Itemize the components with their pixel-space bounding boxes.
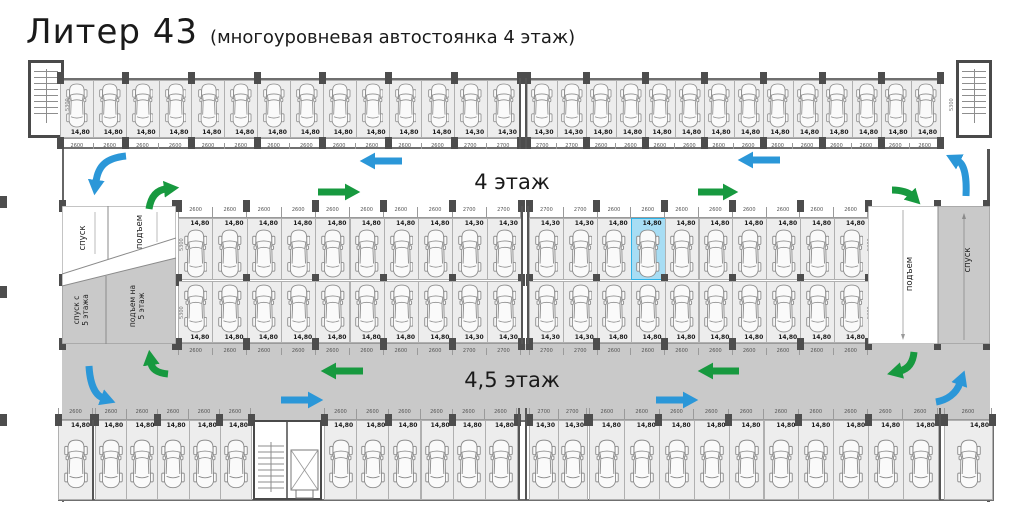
space-area-label: 14,80: [846, 334, 865, 341]
space-area-label: 14,80: [778, 334, 797, 341]
parking-space: 14,80: [911, 80, 942, 138]
space-area-label: 14,80: [301, 129, 320, 136]
car-icon: [489, 439, 513, 489]
parking-space: 14,80: [418, 281, 453, 343]
dimension-label: 2700: [452, 348, 486, 355]
space-area-label: 14,80: [225, 220, 244, 227]
space-area-label: 14,80: [431, 422, 450, 429]
pillar: [216, 414, 223, 426]
parking-space: 14,30: [452, 218, 487, 280]
space-area-label: 14,80: [744, 334, 763, 341]
car-icon: [493, 229, 517, 278]
space-area-label: 14,80: [771, 129, 790, 136]
ramp-label: подъем: [135, 215, 145, 249]
dimension-label: 2600: [484, 409, 516, 419]
dimension-label: 2600: [420, 409, 452, 419]
dimension-strip: 2700270026002600260026002600260026002600: [529, 343, 868, 355]
space-area-label: 14,80: [889, 129, 908, 136]
space-area-label: 14,80: [259, 334, 278, 341]
space-area-label: 14,80: [334, 422, 353, 429]
parking-space: 14,80: [800, 218, 835, 280]
parking-space: 14,80: [224, 80, 258, 138]
dimension-label: 2600: [191, 143, 224, 149]
dimension-label: 2600: [766, 207, 800, 217]
space-area-label: 14,30: [465, 220, 484, 227]
dimension-label: 2600: [597, 207, 631, 217]
selected-parking-space[interactable]: 14,80: [631, 218, 666, 280]
space-area-label: 14,80: [653, 129, 672, 136]
dimension-strip: 2700270026002600260026002600260026002600: [529, 206, 868, 218]
dimension-label: 2600: [728, 409, 763, 419]
dimension-label: 2600: [902, 409, 937, 419]
parking-space: 14,80: [389, 80, 423, 138]
dimension-label: 2600: [664, 207, 698, 217]
dimension-strip: 26002600260026002600: [95, 408, 251, 420]
space-area-label: 14,80: [328, 220, 347, 227]
parking-space: 14,30: [527, 80, 558, 138]
car-icon: [458, 284, 482, 333]
space-area-label: 14,80: [367, 129, 386, 136]
dimension-label: 2600: [257, 143, 290, 149]
dimension-label: 2600: [356, 409, 388, 419]
dimension-label: 2700: [558, 409, 587, 419]
space-area-label: 14,80: [268, 129, 287, 136]
parking-space: 14,80: [699, 281, 734, 343]
car-icon: [493, 284, 517, 333]
parking-space: 14,80: [699, 218, 734, 280]
pillar: [725, 414, 732, 426]
space-area-label: 14,80: [430, 334, 449, 341]
dimension-label: 2600: [417, 207, 451, 217]
dimension-label: 2600: [704, 143, 733, 149]
parking-space: 14,80: [586, 80, 617, 138]
pillar: [0, 414, 7, 426]
space-area-label: 14,80: [104, 422, 123, 429]
dimension-label: 2600: [586, 143, 615, 149]
space-area-label: 14,80: [830, 129, 849, 136]
parking-space: 14,80: [645, 80, 676, 138]
stairs-rail: [46, 69, 47, 123]
space-area-label: 14,80: [229, 422, 248, 429]
pillar: [760, 72, 767, 84]
dimension-label: 2600: [281, 348, 315, 355]
parking-space: 14,80: [732, 218, 767, 280]
space-area-label: 14,80: [643, 220, 662, 227]
parking-space: 14,80: [881, 80, 912, 138]
dimension-label: 2600: [763, 409, 798, 419]
car-icon: [602, 284, 626, 333]
car-icon: [460, 83, 482, 128]
car-icon: [806, 229, 830, 278]
car-icon: [184, 229, 208, 278]
pillar: [583, 137, 590, 149]
pillar: [795, 414, 802, 426]
space-area-label: 14,80: [396, 334, 415, 341]
parking-space: 14,80: [624, 420, 660, 500]
space-area-label: 14,30: [575, 334, 594, 341]
space-area-label: 14,80: [609, 220, 628, 227]
pillar: [642, 137, 649, 149]
car-icon: [355, 284, 379, 333]
parking-space: 14,80: [764, 420, 800, 500]
parking-space: 14,80: [453, 420, 486, 500]
plan-title: Литер 43: [26, 12, 198, 52]
car-icon: [218, 284, 242, 333]
space-area-label: 14,80: [71, 422, 90, 429]
dimension-label: 2600: [762, 143, 791, 149]
space-area-label: 14,80: [643, 334, 662, 341]
car-icon: [428, 83, 450, 128]
depth-dimension-label: 5300: [179, 235, 185, 251]
dimension-label: 2600: [630, 207, 664, 217]
pillar: [937, 72, 944, 84]
pillar: [319, 137, 326, 149]
car-icon: [263, 83, 285, 128]
car-icon: [457, 439, 481, 489]
parking-space: 14,30: [487, 218, 522, 280]
space-area-label: 14,80: [672, 422, 691, 429]
pillar: [593, 338, 600, 350]
pillar: [0, 286, 7, 298]
car-icon: [874, 439, 898, 489]
space-area-label: 14,80: [742, 422, 761, 429]
space-area-label: 14,80: [259, 220, 278, 227]
parking-space: 14,80: [290, 80, 324, 138]
pillar: [312, 338, 319, 350]
dimension-label: 2600: [417, 348, 451, 355]
car-icon: [424, 229, 448, 278]
dimension-label: 2700: [528, 143, 556, 149]
space-area-label: 14,30: [565, 422, 584, 429]
space-area-label: 14,80: [859, 129, 878, 136]
space-area-label: 14,80: [366, 422, 385, 429]
car-icon: [390, 284, 414, 333]
dimension-label: 2600: [909, 143, 938, 149]
parking-space: 14,80: [356, 80, 390, 138]
parking-space: 14,80: [793, 80, 824, 138]
space-area-label: 14,80: [399, 422, 418, 429]
space-area-label: 14,30: [499, 220, 518, 227]
space-area-label: 14,80: [430, 220, 449, 227]
pillar: [57, 72, 64, 84]
space-area-label: 14,80: [778, 220, 797, 227]
parking-space: 14,80: [212, 281, 247, 343]
dimension-label: 2600: [851, 143, 880, 149]
car-icon: [329, 83, 351, 128]
car-icon: [132, 83, 154, 128]
space-area-label: 14,80: [399, 129, 418, 136]
space-area-label: 14,30: [465, 334, 484, 341]
car-icon: [738, 229, 762, 278]
space-area-label: 14,80: [776, 422, 795, 429]
pillar: [937, 137, 944, 149]
space-area-label: 14,80: [362, 334, 381, 341]
parking-space: 14,80: [659, 420, 695, 500]
parking-space: 14,80: [247, 218, 282, 280]
parking-space: 14,80: [834, 281, 869, 343]
dimension-label: 2600: [388, 409, 420, 419]
parking-space: 14,80: [356, 420, 389, 500]
dimension-label: 2600: [798, 409, 833, 419]
wall: [939, 408, 941, 500]
space-area-label: 14,80: [293, 220, 312, 227]
dimension-strip: 2600: [58, 408, 93, 420]
parking-space: 14,80: [281, 218, 316, 280]
parking-space: 14,30: [452, 281, 487, 343]
pillar: [593, 200, 600, 212]
dimension-label: 2600: [732, 207, 766, 217]
car-icon: [535, 229, 559, 278]
space-area-label: 14,80: [135, 422, 154, 429]
dimension-strip: 260026002600260026002600: [324, 408, 517, 420]
parking-space: 14,80: [694, 420, 730, 500]
car-icon: [393, 439, 417, 489]
pillar: [449, 414, 456, 426]
parking-space: 14,80: [189, 420, 221, 500]
car-icon: [738, 284, 762, 333]
pillar: [583, 72, 590, 84]
car-icon: [224, 439, 248, 489]
space-area-label: 14,80: [811, 422, 830, 429]
parking-space: 14,80: [822, 80, 853, 138]
car-icon: [296, 83, 318, 128]
car-icon: [665, 439, 689, 489]
parking-space: 14,30: [529, 218, 564, 280]
space-area-label: 14,80: [71, 129, 90, 136]
pillar: [319, 72, 326, 84]
wall: [521, 206, 523, 344]
space-area-label: 14,80: [198, 422, 217, 429]
car-icon: [321, 284, 345, 333]
space-area-label: 14,80: [970, 422, 989, 429]
parking-space: 14,30: [529, 420, 559, 500]
car-icon: [840, 229, 864, 278]
parking-space: 14,80: [798, 420, 834, 500]
car-icon: [708, 83, 730, 128]
car-icon: [329, 439, 353, 489]
car-icon: [769, 439, 793, 489]
parking-space: 14,80: [597, 218, 632, 280]
parking-space: 14,80: [421, 420, 454, 500]
ramp-left: спуск подъем спуск с 5 этажа подъем на 5…: [62, 206, 176, 344]
space-area-label: 14,80: [710, 334, 729, 341]
page-title: Литер 43 (многоуровневая автостоянка 4 э…: [26, 12, 575, 52]
pillar: [661, 338, 668, 350]
car-icon: [165, 83, 187, 128]
parking-space: 14,80: [281, 281, 316, 343]
parking-space: 14,80: [665, 218, 700, 280]
car-icon: [636, 229, 660, 278]
space-area-label: 14,80: [682, 129, 701, 136]
dimension-label: 2600: [659, 409, 694, 419]
dimension-strip: 2600260026002600260026002600260027002700: [178, 206, 521, 218]
pillar: [243, 338, 250, 350]
space-area-label: 14,80: [800, 129, 819, 136]
dimension-label: 2600: [698, 207, 732, 217]
pillar: [449, 338, 456, 350]
parking-space: 14,80: [868, 420, 904, 500]
car-icon: [424, 284, 448, 333]
car-icon: [425, 439, 449, 489]
parking-space: 14,30: [454, 80, 488, 138]
car-icon: [670, 229, 694, 278]
dimension-label: 2600: [212, 348, 246, 355]
pillar: [122, 137, 129, 149]
car-icon: [840, 284, 864, 333]
floor-label-4: 4 этаж: [402, 170, 622, 194]
space-area-label: 14,80: [169, 129, 188, 136]
car-icon: [355, 229, 379, 278]
dimension-label: 2700: [453, 143, 486, 149]
pillar: [188, 72, 195, 84]
stairwell-elevator-block: [253, 420, 322, 500]
dimension-label: 2600: [645, 143, 674, 149]
parking-space: 14,80: [852, 80, 883, 138]
parking-space: 14,80: [159, 80, 193, 138]
pillar: [989, 414, 996, 426]
parking-space: 14,80: [704, 80, 735, 138]
car-icon: [636, 284, 660, 333]
pillar: [642, 72, 649, 84]
depth-dimension-label: 5300: [179, 303, 185, 319]
car-icon: [590, 83, 612, 128]
ramp-label: подъем на: [128, 285, 137, 327]
dimension-label: 2600: [615, 143, 644, 149]
parking-space: 14,80: [315, 218, 350, 280]
pillar: [797, 200, 804, 212]
pillar: [701, 137, 708, 149]
pillar: [661, 200, 668, 212]
wall: [92, 420, 94, 500]
dimension-label: 2600: [93, 143, 126, 149]
space-area-label: 14,80: [328, 334, 347, 341]
space-area-label: 14,80: [334, 129, 353, 136]
pillar: [878, 137, 885, 149]
pillar: [385, 72, 392, 84]
stairwell-top-right: [956, 60, 992, 138]
car-icon: [99, 83, 121, 128]
car-icon: [679, 83, 701, 128]
dimension-label: 2600: [383, 348, 417, 355]
pillar: [122, 72, 129, 84]
dimension-label: 2600: [126, 409, 157, 419]
dimension-label: 2600: [945, 409, 991, 419]
car-icon: [130, 439, 154, 489]
dimension-label: 2600: [674, 143, 703, 149]
space-area-label: 14,80: [235, 129, 254, 136]
space-area-label: 14,80: [916, 422, 935, 429]
space-area-label: 14,80: [846, 422, 865, 429]
pillar: [188, 137, 195, 149]
dimension-label: 2600: [289, 143, 322, 149]
space-area-label: 14,80: [707, 422, 726, 429]
space-area-label: 14,80: [812, 220, 831, 227]
parking-space: 14,30: [563, 281, 598, 343]
dimension-label: 2700: [563, 207, 597, 217]
car-icon: [161, 439, 185, 489]
parking-space: 14,80: [350, 281, 385, 343]
car-icon: [561, 83, 583, 128]
pillar: [385, 414, 392, 426]
car-icon: [767, 83, 789, 128]
parking-space: 14,80: [675, 80, 706, 138]
dimension-label: 2600: [733, 143, 762, 149]
pillar: [451, 72, 458, 84]
dimension-label: 2600: [179, 207, 212, 217]
dimension-strip: 2600260026002600260026002600260026002600: [589, 408, 938, 420]
car-icon: [218, 229, 242, 278]
car-icon: [806, 284, 830, 333]
car-icon: [569, 229, 593, 278]
space-area-label: 14,80: [846, 220, 865, 227]
space-area-label: 14,80: [677, 220, 696, 227]
dimension-label: 2600: [833, 207, 867, 217]
parking-space: 14,80: [95, 420, 127, 500]
floor-label-4-5: 4,5 этаж: [402, 368, 622, 392]
parking-space: 14,80: [834, 218, 869, 280]
parking-space: 14,80: [665, 281, 700, 343]
space-area-label: 14,30: [465, 129, 484, 136]
pillar: [380, 338, 387, 350]
dimension-label: 2600: [325, 409, 356, 419]
dimension-label: 2600: [188, 409, 219, 419]
car-icon: [252, 284, 276, 333]
parking-space: 14,80: [126, 80, 160, 138]
parking-space: 14,30: [557, 80, 588, 138]
parking-space: 14,80: [324, 420, 357, 500]
car-icon: [700, 439, 724, 489]
car-icon: [569, 284, 593, 333]
dimension-strip: 2600260026002600260026002600260027002700: [178, 343, 521, 355]
pillar: [0, 196, 7, 208]
space-area-label: 14,80: [741, 129, 760, 136]
dimension-label: 2600: [355, 143, 388, 149]
space-area-label: 14,80: [594, 129, 613, 136]
space-area-label: 14,80: [881, 422, 900, 429]
dimension-label: 2600: [792, 143, 821, 149]
dimension-label: 2600: [315, 207, 349, 217]
ramp-label: спуск: [963, 247, 973, 272]
dimension-label: 2600: [383, 207, 417, 217]
dimension-label: 2600: [590, 409, 624, 419]
car-icon: [704, 229, 728, 278]
dimension-label: 2600: [630, 348, 664, 355]
dimension-label: 2600: [349, 207, 383, 217]
car-icon: [856, 83, 878, 128]
dimension-label: 2600: [224, 143, 257, 149]
parking-space: 14,80: [58, 420, 94, 500]
space-area-label: 14,80: [812, 334, 831, 341]
parking-space: 14,80: [384, 281, 419, 343]
parking-space: 14,80: [418, 218, 453, 280]
car-icon: [704, 284, 728, 333]
pillar: [380, 200, 387, 212]
dimension-label: 2600: [315, 348, 349, 355]
car-icon: [561, 439, 585, 489]
car-icon: [885, 83, 907, 128]
parking-space: 14,80: [766, 281, 801, 343]
dimension-label: 2700: [530, 409, 558, 419]
car-icon: [458, 229, 482, 278]
car-icon: [395, 83, 417, 128]
pillar: [701, 72, 708, 84]
dimension-label: 2600: [693, 409, 728, 419]
parking-space: 14,80: [323, 80, 357, 138]
car-icon: [735, 439, 759, 489]
wall: [525, 408, 527, 500]
depth-dimension-label: 5300: [65, 95, 71, 111]
dimension-label: 2600: [421, 143, 454, 149]
